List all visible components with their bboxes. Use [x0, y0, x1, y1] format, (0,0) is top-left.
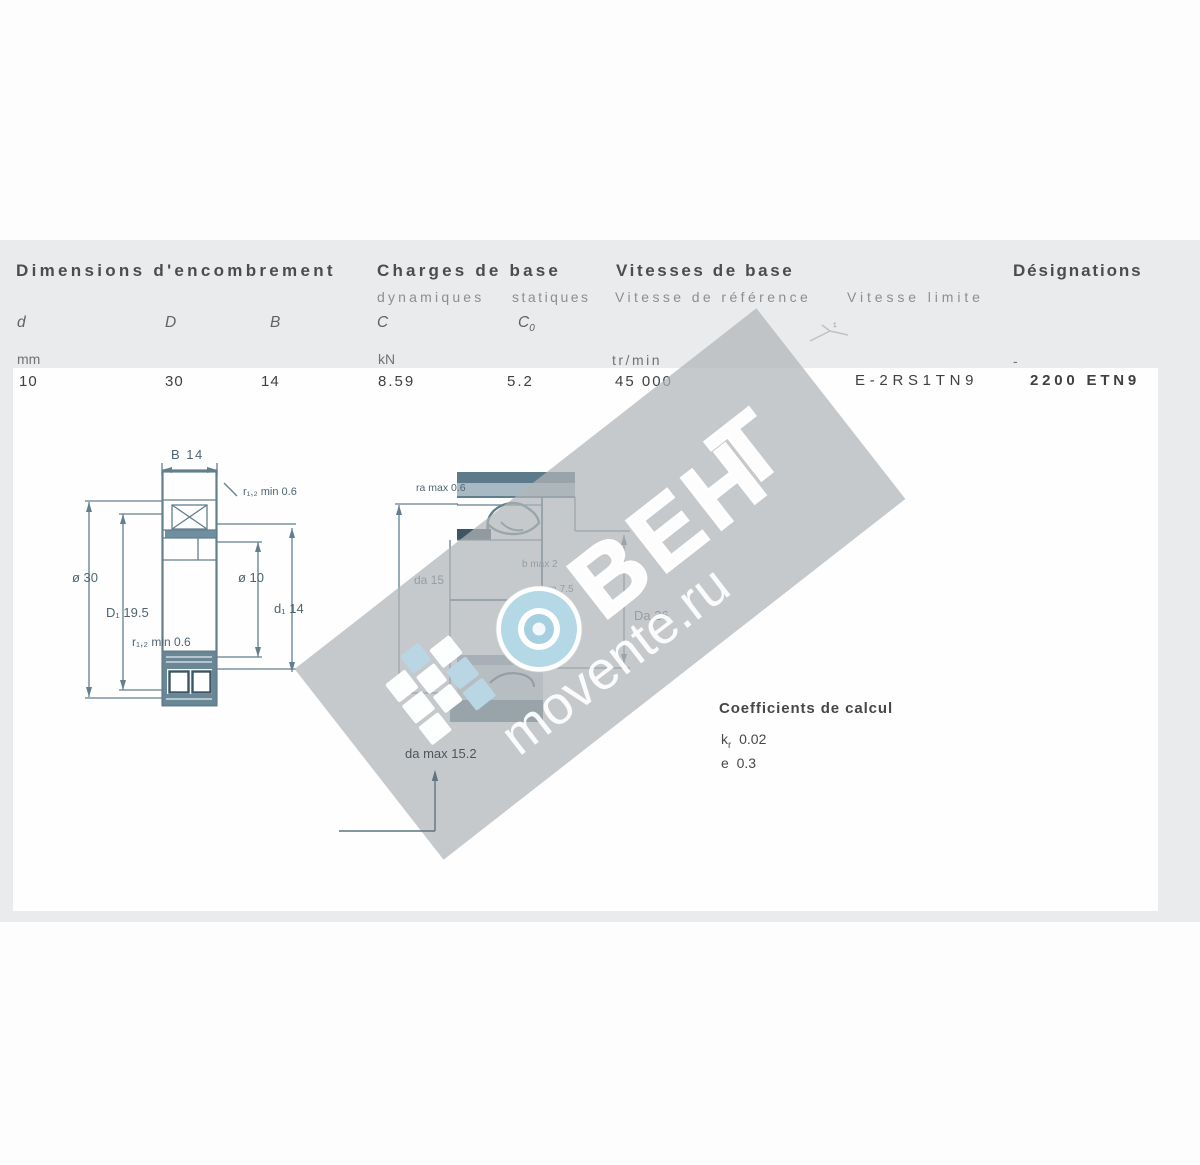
svg-text:da max 15.2: da max 15.2 — [405, 746, 477, 761]
